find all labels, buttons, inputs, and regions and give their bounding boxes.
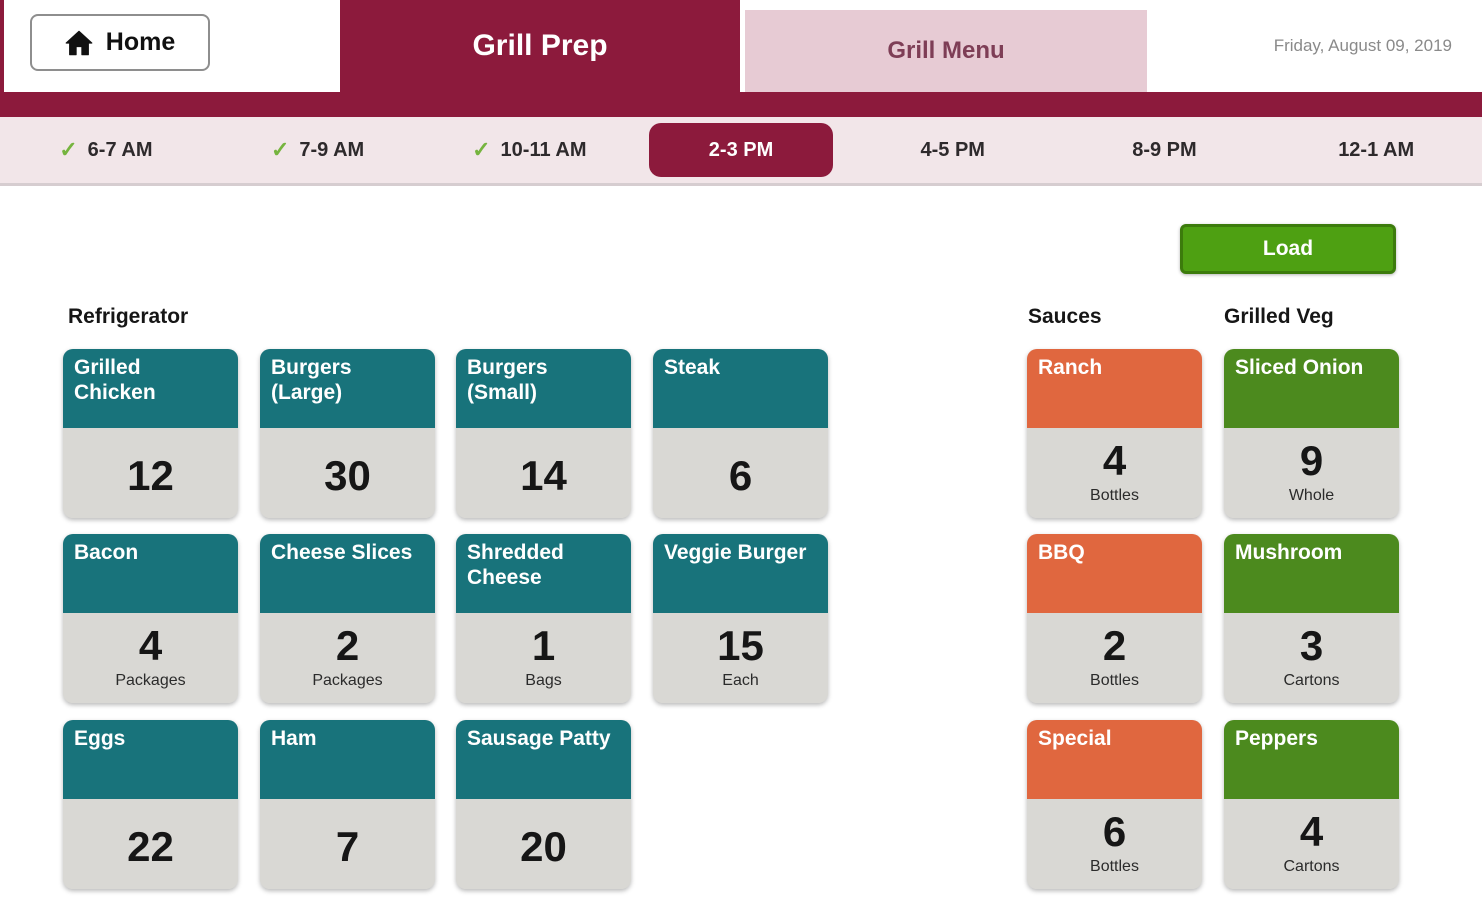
inventory-card-unit: Each: [653, 672, 828, 690]
inventory-card-unit: Cartons: [1224, 672, 1399, 690]
time-slot-label: 10-11 AM: [501, 139, 587, 162]
inventory-card-count: 6: [653, 428, 828, 497]
time-slot[interactable]: 2-3 PM: [635, 117, 847, 183]
inventory-card-unit: Bottles: [1027, 858, 1202, 876]
check-icon: ✓: [472, 139, 490, 161]
inventory-card-title: Peppers: [1224, 720, 1399, 799]
current-date: Friday, August 09, 2019: [1274, 0, 1452, 92]
inventory-card[interactable]: BBQ 2 Bottles: [1027, 534, 1202, 703]
check-icon: ✓: [271, 139, 289, 161]
home-icon: [65, 30, 93, 56]
section-label-grilled-veg: Grilled Veg: [1224, 305, 1334, 329]
inventory-card-unit: Bottles: [1027, 672, 1202, 690]
time-slot-label: 4-5 PM: [921, 139, 985, 162]
inventory-card[interactable]: Sliced Onion 9 Whole: [1224, 349, 1399, 518]
inventory-card[interactable]: Eggs 22: [63, 720, 238, 889]
inventory-card-title: Burgers (Small): [456, 349, 631, 428]
inventory-card-unit: Packages: [63, 672, 238, 690]
time-slot-label: 8-9 PM: [1132, 139, 1196, 162]
grill-prep-screen: Home Grill Prep Grill Menu Friday, Augus…: [0, 0, 1482, 900]
inventory-card[interactable]: Steak 6: [653, 349, 828, 518]
header-divider-band: [0, 92, 1482, 117]
inventory-card[interactable]: Burgers (Small) 14: [456, 349, 631, 518]
inventory-card-unit: Packages: [260, 672, 435, 690]
inventory-card-count: 2: [260, 613, 435, 667]
inventory-card-title: Grilled Chicken: [63, 349, 238, 428]
home-button-label: Home: [106, 28, 175, 57]
time-slot[interactable]: 8-9 PM: [1059, 117, 1271, 183]
inventory-card-title: BBQ: [1027, 534, 1202, 613]
inventory-card-title: Sausage Patty: [456, 720, 631, 799]
active-time-slot: 2-3 PM: [649, 123, 833, 177]
inventory-card[interactable]: Veggie Burger 15 Each: [653, 534, 828, 703]
inventory-card-title: Veggie Burger: [653, 534, 828, 613]
inventory-card-count: 12: [63, 428, 238, 497]
section-label-sauces: Sauces: [1028, 305, 1102, 329]
tab-grill-prep[interactable]: Grill Prep: [340, 0, 740, 92]
inventory-card-title: Ham: [260, 720, 435, 799]
inventory-card-count: 20: [456, 799, 631, 868]
inventory-card-unit: Whole: [1224, 487, 1399, 505]
inventory-card-title: Shredded Cheese: [456, 534, 631, 613]
time-slot-label: 6-7 AM: [88, 139, 153, 162]
inventory-card-title: Cheese Slices: [260, 534, 435, 613]
tab-grill-menu-label: Grill Menu: [887, 37, 1004, 65]
time-slot[interactable]: ✓ 10-11 AM: [423, 117, 635, 183]
inventory-card-title: Steak: [653, 349, 828, 428]
inventory-card-unit: Bottles: [1027, 487, 1202, 505]
section-label-refrigerator: Refrigerator: [68, 305, 188, 329]
inventory-card-count: 6: [1027, 799, 1202, 853]
time-slot-label: 7-9 AM: [299, 139, 364, 162]
load-button-label: Load: [1263, 237, 1313, 261]
inventory-card-count: 14: [456, 428, 631, 497]
inventory-card-unit: Cartons: [1224, 858, 1399, 876]
tab-grill-prep-label: Grill Prep: [472, 29, 607, 63]
inventory-card-count: 15: [653, 613, 828, 667]
inventory-card[interactable]: Shredded Cheese 1 Bags: [456, 534, 631, 703]
inventory-card-count: 2: [1027, 613, 1202, 667]
time-slot-label: 12-1 AM: [1338, 139, 1414, 162]
inventory-card[interactable]: Mushroom 3 Cartons: [1224, 534, 1399, 703]
inventory-card-count: 4: [63, 613, 238, 667]
time-slot[interactable]: 12-1 AM: [1270, 117, 1482, 183]
inventory-card-title: Eggs: [63, 720, 238, 799]
inventory-card-count: 7: [260, 799, 435, 868]
inventory-card[interactable]: Sausage Patty 20: [456, 720, 631, 889]
inventory-card-count: 3: [1224, 613, 1399, 667]
inventory-card-count: 4: [1224, 799, 1399, 853]
inventory-card[interactable]: Burgers (Large) 30: [260, 349, 435, 518]
tab-grill-menu[interactable]: Grill Menu: [745, 10, 1147, 92]
inventory-card-title: Sliced Onion: [1224, 349, 1399, 428]
inventory-card-unit: Bags: [456, 672, 631, 690]
time-slot[interactable]: ✓ 6-7 AM: [0, 117, 212, 183]
inventory-card[interactable]: Special 6 Bottles: [1027, 720, 1202, 889]
inventory-card[interactable]: Bacon 4 Packages: [63, 534, 238, 703]
inventory-card-title: Special: [1027, 720, 1202, 799]
check-icon: ✓: [59, 139, 77, 161]
inventory-card[interactable]: Ham 7: [260, 720, 435, 889]
time-slot[interactable]: ✓ 7-9 AM: [212, 117, 424, 183]
inventory-card-count: 4: [1027, 428, 1202, 482]
inventory-card[interactable]: Cheese Slices 2 Packages: [260, 534, 435, 703]
time-slot-bar: ✓ 6-7 AM ✓ 7-9 AM ✓ 10-11 AM 2-3 PM 4-5 …: [0, 117, 1482, 186]
inventory-card[interactable]: Ranch 4 Bottles: [1027, 349, 1202, 518]
inventory-card-count: 9: [1224, 428, 1399, 482]
inventory-card-count: 1: [456, 613, 631, 667]
screen-edge-sliver: [0, 0, 4, 92]
inventory-card-title: Ranch: [1027, 349, 1202, 428]
inventory-card-title: Burgers (Large): [260, 349, 435, 428]
time-slot[interactable]: 4-5 PM: [847, 117, 1059, 183]
load-button[interactable]: Load: [1180, 224, 1396, 274]
home-button[interactable]: Home: [30, 14, 210, 71]
inventory-card[interactable]: Grilled Chicken 12: [63, 349, 238, 518]
inventory-card-count: 22: [63, 799, 238, 868]
inventory-card-count: 30: [260, 428, 435, 497]
inventory-card[interactable]: Peppers 4 Cartons: [1224, 720, 1399, 889]
inventory-card-title: Bacon: [63, 534, 238, 613]
top-header: Home Grill Prep Grill Menu Friday, Augus…: [0, 0, 1482, 92]
inventory-card-title: Mushroom: [1224, 534, 1399, 613]
